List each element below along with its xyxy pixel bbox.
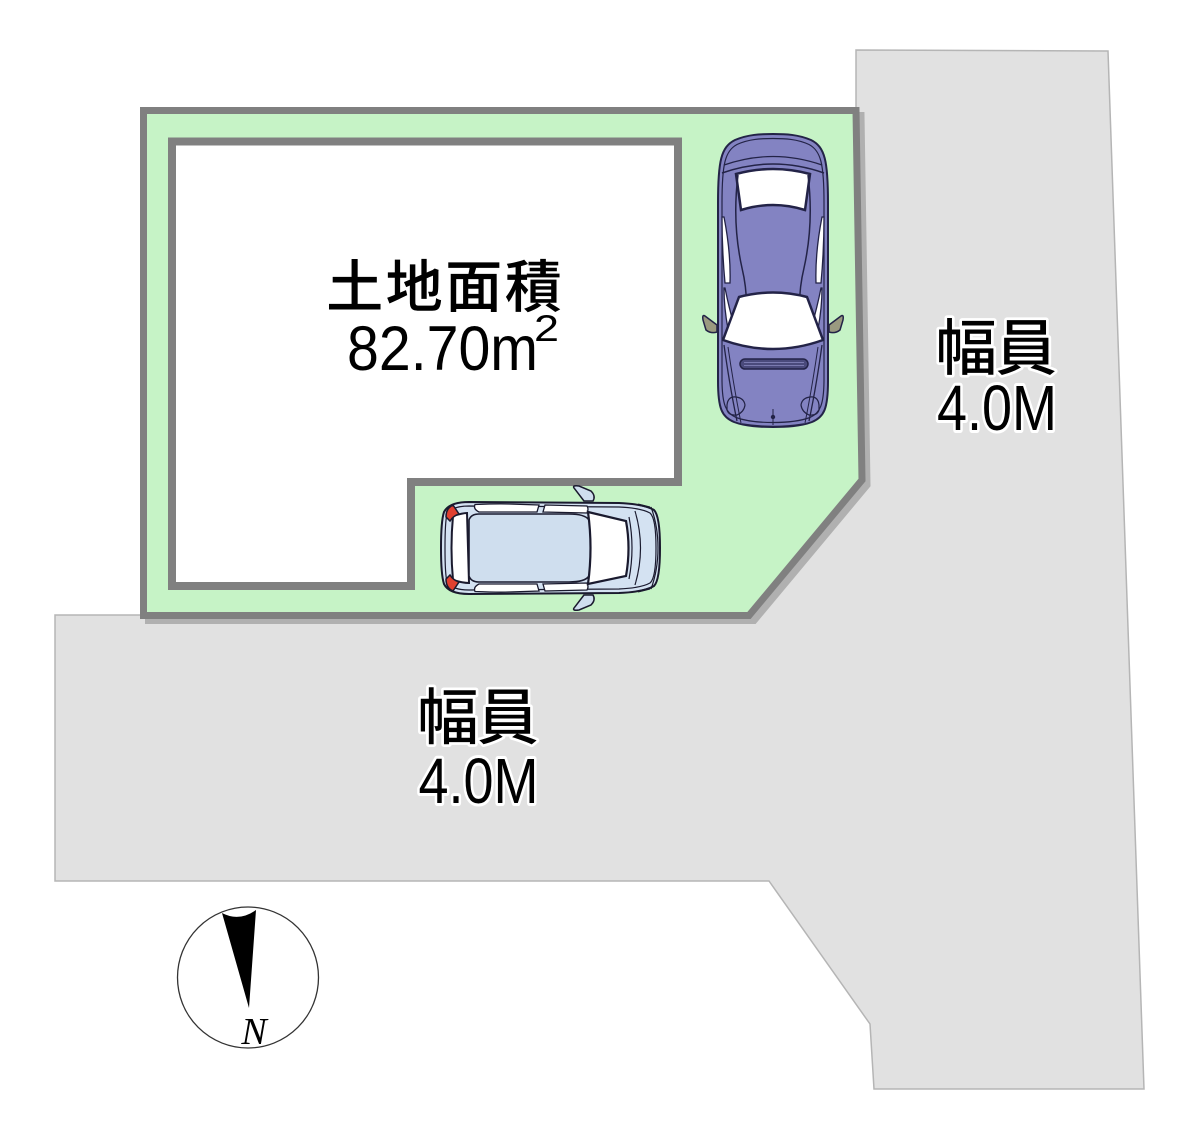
svg-text:N: N [240,1011,269,1053]
svg-text:4.0M: 4.0M [419,745,539,817]
svg-text:4.0M: 4.0M [937,372,1057,444]
svg-text:2: 2 [534,308,559,349]
svg-text:82.70m: 82.70m [347,314,538,384]
